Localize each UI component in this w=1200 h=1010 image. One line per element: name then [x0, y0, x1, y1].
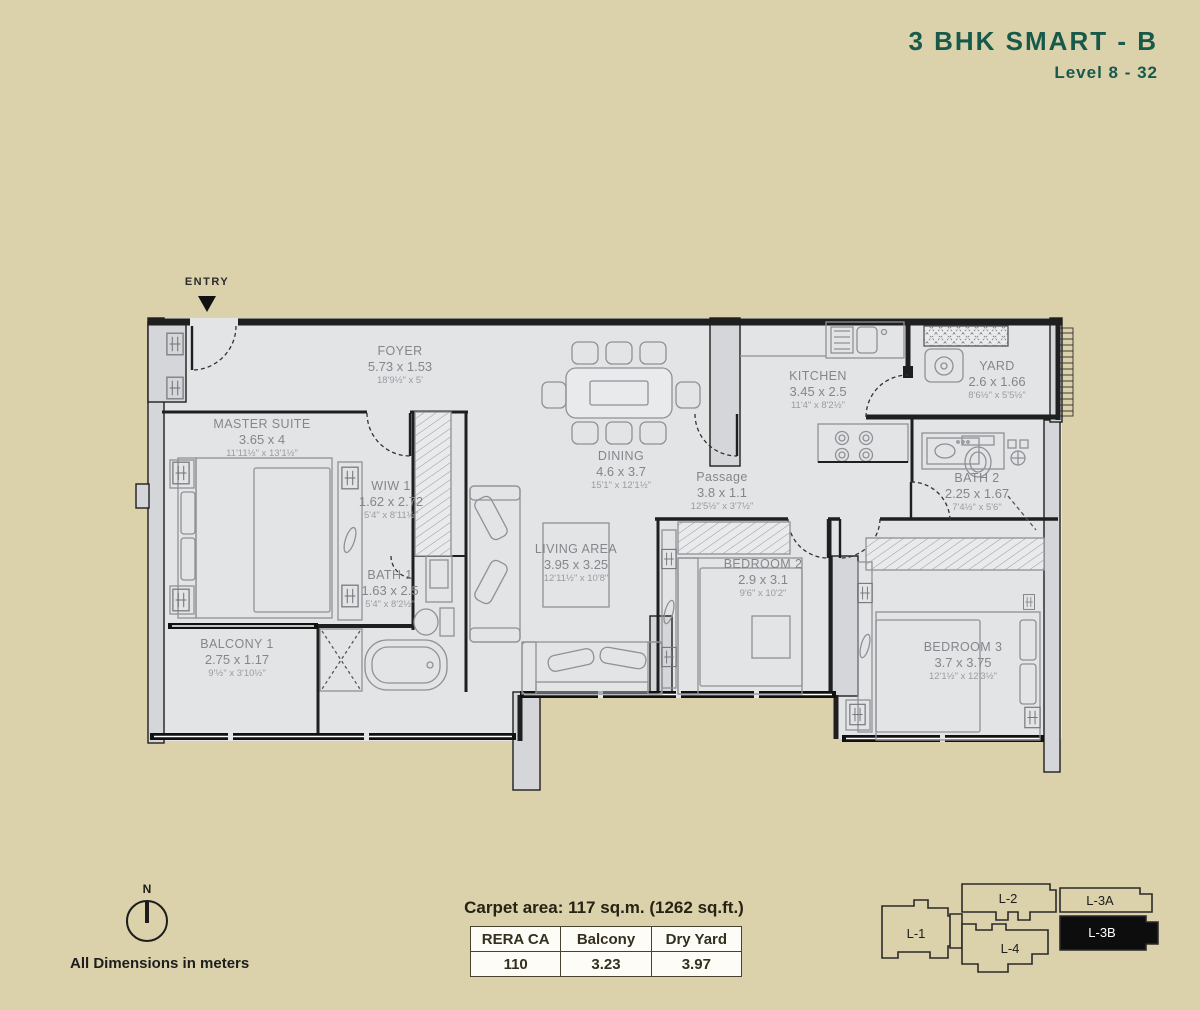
living-bed2-pier — [650, 616, 672, 694]
room-label-yard: YARD 2.6 x 1.66 8'6½" x 5'5½" — [968, 359, 1025, 402]
floor-plan-page: { "title": { "name": "3 BHK SMART - B", … — [0, 0, 1200, 1010]
room-label-passage: Passage 3.8 x 1.1 12'5½" x 3'7½" — [691, 470, 754, 513]
room-label-balcony1: BALCONY 1 2.75 x 1.17 9'½" x 3'10½" — [200, 637, 274, 680]
header-balcony: Balcony — [561, 927, 651, 952]
value-dry-yard: 3.97 — [651, 952, 741, 977]
floor-plan-svg — [0, 0, 1200, 1010]
north-label: N — [143, 882, 152, 896]
carpet-area-summary: Carpet area: 117 sq.m. (1262 sq.ft.) — [464, 898, 744, 918]
dimensions-note: All Dimensions in meters — [70, 955, 249, 972]
keyplan-label-l1: L-1 — [907, 926, 926, 941]
yard-counter — [924, 326, 1008, 346]
entry-arrow-icon — [198, 296, 216, 312]
room-label-bath2: BATH 2 2.25 x 1.67 7'4½" x 5'6" — [945, 471, 1009, 514]
title-block: 3 BHK SMART - B Level 8 - 32 — [908, 26, 1158, 83]
table-value-row: 110 3.23 3.97 — [471, 952, 742, 977]
room-label-bath1: BATH 1 1.63 x 2.5 5'4" x 8'2½" — [361, 568, 418, 611]
table-header-row: RERA CA Balcony Dry Yard — [471, 927, 742, 952]
keyplan-label-l3b: L-3B — [1088, 925, 1115, 940]
wardrobe-bed3 — [866, 538, 1044, 570]
corridor-pier — [832, 556, 858, 696]
room-label-wiw1: WIW 1 1.62 x 2.72 5'4" x 8'11½" — [359, 479, 423, 522]
page-title: 3 BHK SMART - B — [908, 26, 1158, 57]
wardrobe-bed2 — [678, 522, 790, 554]
page-subtitle: Level 8 - 32 — [908, 63, 1158, 83]
right-wall-lower — [1044, 420, 1060, 772]
left-wall-notch — [136, 484, 149, 508]
header-rera-ca: RERA CA — [471, 927, 561, 952]
keyplan-label-l2: L-2 — [999, 891, 1018, 906]
header-dry-yard: Dry Yard — [651, 927, 741, 952]
pier-below-balcony — [513, 692, 540, 790]
room-label-kitchen: KITCHEN 3.45 x 2.5 11'4" x 8'2½" — [789, 369, 847, 412]
room-label-master-suite: MASTER SUITE 3.65 x 4 11'11½" x 13'1½" — [213, 417, 310, 460]
carpet-area-table: RERA CA Balcony Dry Yard 110 3.23 3.97 — [470, 926, 742, 977]
keyplan-connector — [950, 914, 962, 948]
value-balcony: 3.23 — [561, 952, 651, 977]
yard-louver — [1060, 328, 1073, 416]
north-compass-icon — [127, 901, 167, 941]
room-label-dining: DINING 4.6 x 3.7 15'1" x 12'1½" — [591, 449, 651, 492]
keyplan-label-l4: L-4 — [1001, 941, 1020, 956]
keyplan-label-l3a: L-3A — [1086, 893, 1113, 908]
room-label-bedroom3: BEDROOM 3 3.7 x 3.75 12'1½" x 12'3½" — [924, 640, 1003, 683]
service-shaft — [710, 318, 740, 466]
room-label-foyer: FOYER 5.73 x 1.53 18'9½" x 5' — [368, 344, 432, 387]
room-label-living-area: LIVING AREA 3.95 x 3.25 12'11½" x 10'8" — [535, 542, 617, 585]
value-rera-ca: 110 — [471, 952, 561, 977]
entry-label: ENTRY — [185, 276, 229, 288]
room-label-bedroom2: BEDROOM 2 2.9 x 3.1 9'6" x 10'2" — [724, 557, 803, 600]
